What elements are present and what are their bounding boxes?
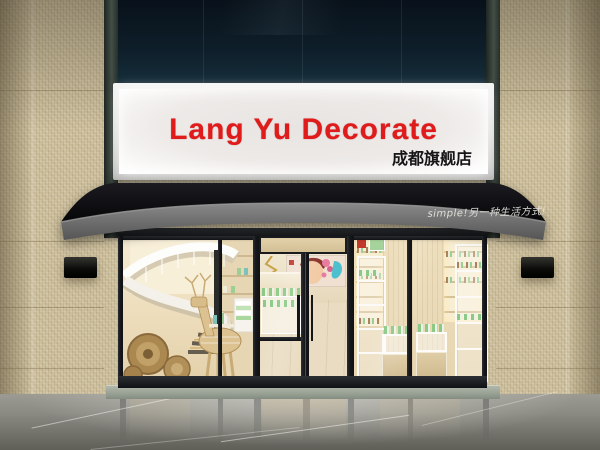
- marble-floor: [0, 394, 600, 450]
- floor-warm-reflection: [262, 394, 346, 439]
- wall-seam: [496, 90, 600, 91]
- wall-seam: [496, 307, 600, 308]
- wall-lamp-left: [64, 257, 97, 278]
- window-frame-left: [118, 236, 123, 388]
- wall-seam: [0, 307, 104, 308]
- window-bottom-rail: [118, 376, 487, 388]
- sign-title: Lang Yu Decorate: [119, 113, 488, 147]
- green-product-row: [263, 300, 299, 307]
- floor-reflection-streak: [483, 394, 489, 450]
- wall-lamp-right: [521, 257, 554, 278]
- floor-reflection-streak: [120, 394, 126, 450]
- sign-panel: Lang Yu Decorate 成都旗舰店: [119, 89, 488, 174]
- wall-seam: [496, 368, 600, 369]
- window-mullion: [407, 240, 412, 388]
- door-leaf-gap: [305, 253, 306, 388]
- floor-reflection-streak: [254, 394, 261, 450]
- shelf-products: [359, 270, 380, 276]
- shelf-products: [457, 262, 482, 268]
- left-window-scene: [122, 236, 254, 388]
- sign-branch-label: 成都旗舰店: [392, 145, 472, 169]
- shelf-products: [359, 318, 380, 324]
- door-mid-rail: [260, 337, 301, 341]
- glass-sheen: [104, 0, 500, 35]
- display-cabinet-shelf: [416, 332, 447, 352]
- sign-lightbox: Lang Yu Decorate 成都旗舰店: [113, 83, 494, 180]
- wall-seam: [0, 90, 104, 91]
- door-handle-right: [311, 295, 314, 341]
- door-frame-left: [253, 236, 260, 388]
- storefront-scene: Lang Yu Decorate 成都旗舰店 simple!另一种生活方式!: [0, 0, 600, 450]
- door-handle-left: [297, 295, 300, 341]
- towel-display-table: [234, 298, 253, 332]
- window-mullion: [218, 240, 222, 388]
- green-product-row: [262, 288, 300, 296]
- cabinet-top-products: [418, 324, 445, 332]
- upper-curtainwall: [104, 0, 500, 88]
- wall-seam: [0, 368, 104, 369]
- shelf-products: [457, 314, 482, 320]
- door-frame-right: [347, 236, 354, 388]
- window-frame-right: [482, 236, 487, 388]
